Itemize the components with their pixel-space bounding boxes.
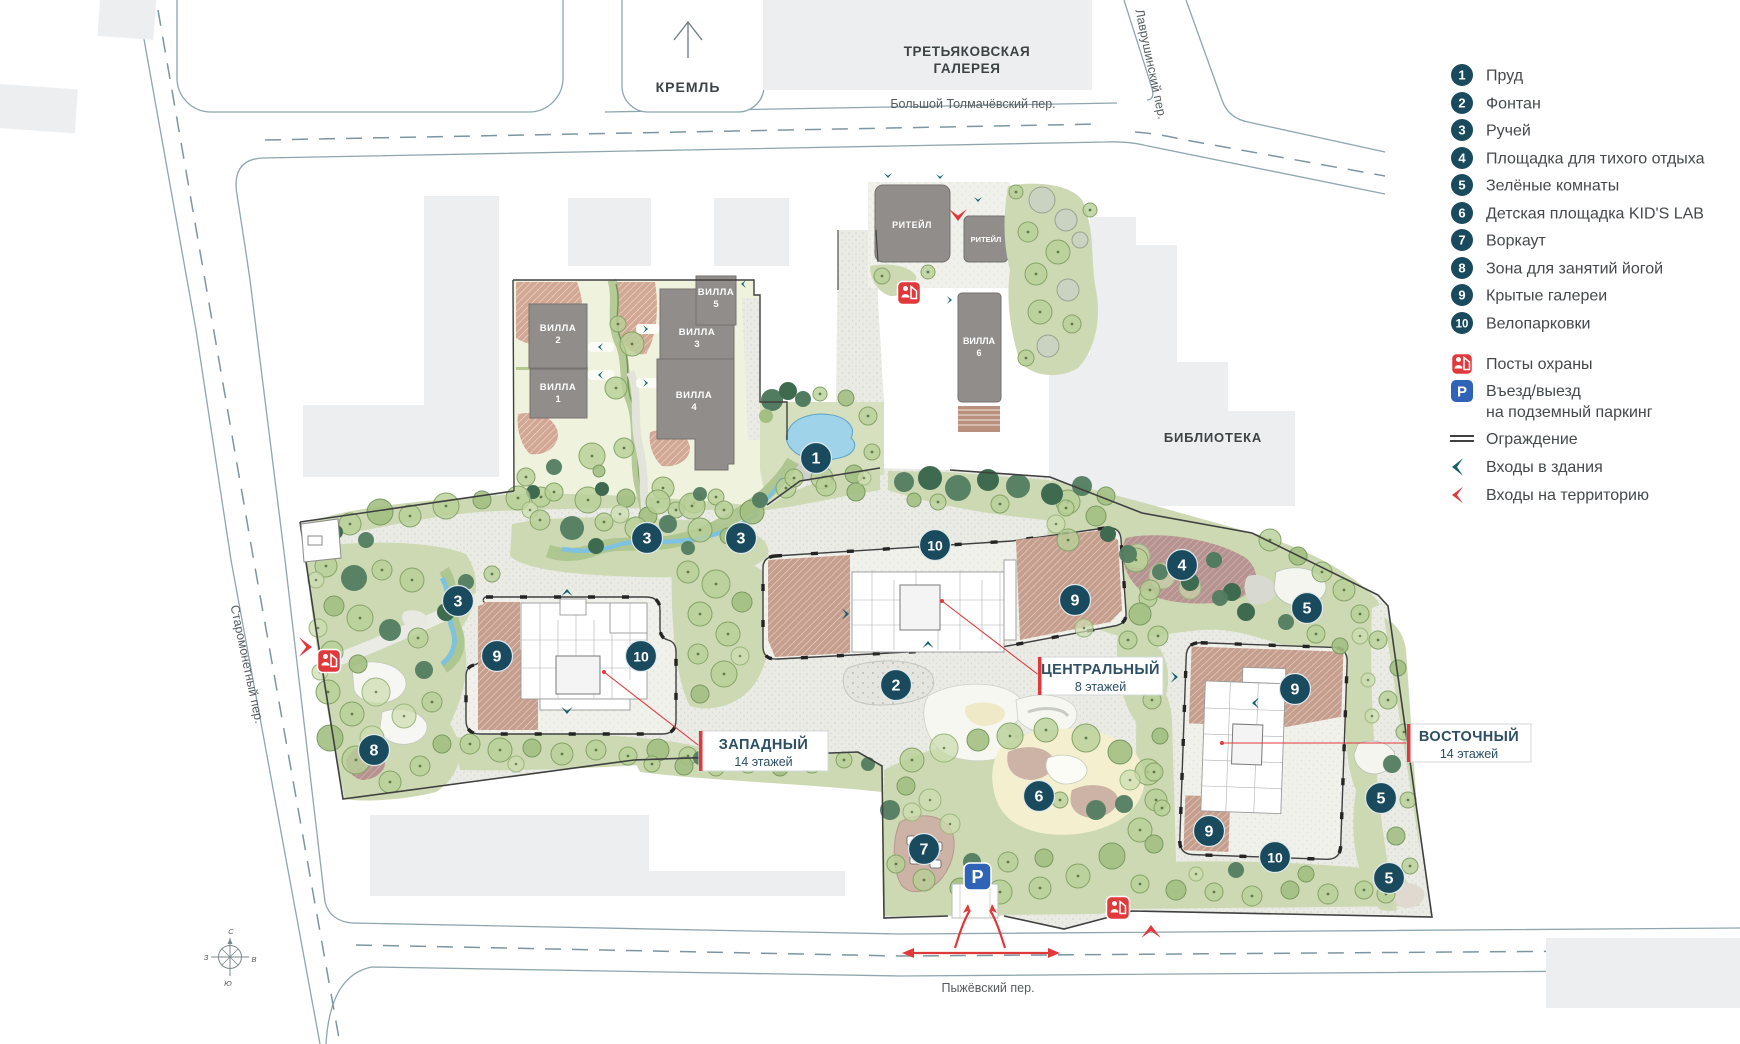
svg-text:ЗАПАДНЫЙ: ЗАПАДНЫЙ	[719, 735, 808, 753]
svg-text:ГАЛЕРЕЯ: ГАЛЕРЕЯ	[933, 61, 1000, 76]
svg-text:Детская площадка KID'S LAB: Детская площадка KID'S LAB	[1486, 206, 1704, 223]
svg-text:3: 3	[643, 531, 652, 548]
svg-text:ВИЛЛА: ВИЛЛА	[540, 323, 576, 334]
svg-text:9: 9	[1071, 593, 1080, 610]
svg-text:ВИЛЛА: ВИЛЛА	[676, 390, 712, 401]
svg-text:7: 7	[920, 842, 929, 859]
svg-text:P: P	[1457, 384, 1467, 401]
svg-text:Велопарковки: Велопарковки	[1486, 316, 1590, 333]
svg-text:10: 10	[1267, 850, 1283, 866]
svg-text:РИТЕЙЛ: РИТЕЙЛ	[971, 235, 1002, 244]
svg-text:3: 3	[1458, 123, 1465, 138]
svg-text:Ограждение: Ограждение	[1486, 431, 1578, 448]
svg-text:5: 5	[1303, 601, 1312, 618]
svg-text:Пыжёвский пер.: Пыжёвский пер.	[941, 981, 1034, 995]
svg-text:Зелёные комнаты: Зелёные комнаты	[1486, 178, 1619, 195]
svg-text:5: 5	[1377, 791, 1386, 808]
svg-text:8: 8	[1458, 261, 1465, 276]
svg-text:З: З	[204, 953, 209, 962]
svg-text:5: 5	[713, 299, 719, 310]
svg-text:9: 9	[1291, 682, 1300, 699]
svg-text:9: 9	[493, 649, 502, 666]
svg-text:7: 7	[1458, 233, 1465, 248]
svg-text:С: С	[228, 927, 234, 936]
svg-text:3: 3	[737, 531, 746, 548]
svg-text:3: 3	[454, 594, 463, 611]
svg-text:6: 6	[1458, 206, 1465, 221]
svg-text:4: 4	[1178, 558, 1187, 575]
svg-text:КРЕМЛЬ: КРЕМЛЬ	[656, 79, 721, 95]
svg-text:10: 10	[1456, 319, 1469, 331]
svg-text:В: В	[251, 955, 256, 964]
svg-text:Площадка для тихого отдыха: Площадка для тихого отдыха	[1486, 151, 1705, 168]
svg-text:на подземный паркинг: на подземный паркинг	[1486, 404, 1653, 421]
svg-text:8 этажей: 8 этажей	[1075, 680, 1126, 694]
svg-text:ВИЛЛА: ВИЛЛА	[698, 287, 734, 298]
svg-text:ВИЛЛА: ВИЛЛА	[540, 382, 576, 393]
svg-text:3: 3	[694, 339, 699, 350]
svg-text:ТРЕТЬЯКОВСКАЯ: ТРЕТЬЯКОВСКАЯ	[904, 44, 1031, 59]
svg-text:6: 6	[976, 348, 981, 358]
svg-text:9: 9	[1205, 824, 1214, 841]
svg-text:8: 8	[370, 743, 379, 760]
svg-text:ЦЕНТРАЛЬНЫЙ: ЦЕНТРАЛЬНЫЙ	[1041, 660, 1160, 678]
svg-text:14 этажей: 14 этажей	[1440, 747, 1498, 761]
svg-text:Входы в здания: Входы в здания	[1486, 459, 1603, 476]
svg-text:Ю: Ю	[224, 979, 232, 988]
svg-text:ВИЛЛА: ВИЛЛА	[679, 327, 715, 338]
svg-text:4: 4	[1458, 151, 1466, 166]
svg-text:Въезд/выезд: Въезд/выезд	[1486, 383, 1582, 400]
svg-text:9: 9	[1458, 288, 1465, 303]
svg-text:4: 4	[691, 402, 697, 413]
svg-text:14 этажей: 14 этажей	[734, 755, 792, 769]
svg-text:Крытые галереи: Крытые галереи	[1486, 288, 1607, 305]
svg-text:БИБЛИОТЕКА: БИБЛИОТЕКА	[1164, 430, 1262, 445]
svg-text:Зона для занятий йогой: Зона для занятий йогой	[1486, 261, 1663, 278]
svg-text:2: 2	[892, 678, 901, 695]
svg-text:РИТЕЙЛ: РИТЕЙЛ	[892, 219, 932, 230]
svg-text:1: 1	[1458, 68, 1465, 83]
svg-text:10: 10	[633, 649, 649, 665]
svg-text:Ручей: Ручей	[1486, 123, 1531, 140]
svg-text:P: P	[971, 867, 983, 887]
svg-text:ВИЛЛА: ВИЛЛА	[963, 336, 996, 346]
svg-text:Большой Толмачёвский пер.: Большой Толмачёвский пер.	[890, 97, 1055, 111]
svg-text:6: 6	[1035, 789, 1044, 806]
svg-text:10: 10	[927, 538, 943, 554]
svg-text:Посты охраны: Посты охраны	[1486, 356, 1593, 373]
svg-text:1: 1	[555, 394, 561, 405]
svg-text:Фонтан: Фонтан	[1486, 96, 1541, 113]
svg-text:ВОСТОЧНЫЙ: ВОСТОЧНЫЙ	[1419, 727, 1519, 745]
svg-text:2: 2	[1458, 96, 1465, 111]
svg-text:1: 1	[812, 451, 821, 468]
svg-text:Воркаут: Воркаут	[1486, 233, 1547, 250]
svg-text:5: 5	[1458, 178, 1465, 193]
svg-text:2: 2	[555, 335, 560, 346]
svg-text:5: 5	[1385, 871, 1394, 888]
svg-text:Входы на территорию: Входы на территорию	[1486, 487, 1649, 504]
svg-text:Пруд: Пруд	[1486, 68, 1524, 85]
